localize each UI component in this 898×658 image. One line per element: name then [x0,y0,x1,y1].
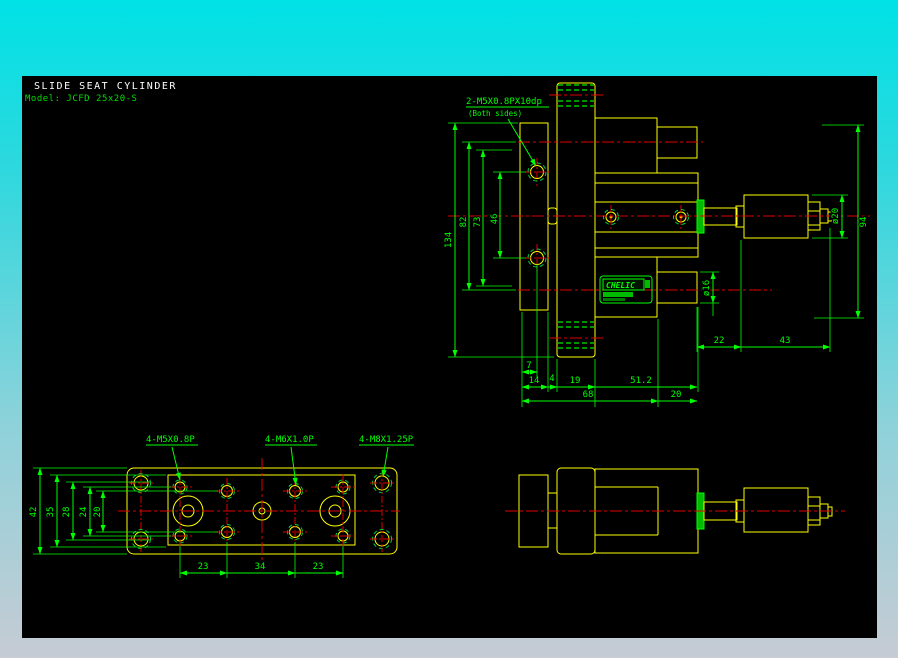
dim-7: 7 [526,361,531,371]
cad-window: SLIDE SEAT CYLINDER Model: JCFD 25x20-S [0,0,898,658]
drawing-title: SLIDE SEAT CYLINDER [34,81,177,92]
dim-94: 94 [859,217,869,228]
dim-20: 20 [671,390,682,400]
dim-23b: 23 [313,562,324,572]
dim-46: 46 [490,214,500,225]
dim-35: 35 [46,507,56,518]
dim-28: 28 [62,507,72,518]
label-m5: 4-M5X0.8P [146,435,195,445]
dim-82: 82 [459,217,469,228]
dim-34: 34 [255,562,266,572]
dim-dia16: ø16 [702,280,712,296]
dim-68: 68 [583,390,594,400]
dim-4: 4 [549,374,554,384]
label-m8: 4-M8X1.25P [359,435,414,445]
dim-42: 42 [29,507,39,518]
dim-20-plan: 20 [93,507,103,518]
brand-logo: CHELIC [606,281,635,290]
dim-73: 73 [473,217,483,228]
dim-51-2: 51.2 [630,376,652,386]
dim-134: 134 [444,232,454,248]
dim-43: 43 [780,336,791,346]
label-m6: 4-M6X1.0P [265,435,314,445]
dim-23a: 23 [198,562,209,572]
dim-dia20: ø20 [831,208,841,224]
thread-note-text: 2-M5X0.8PX10dp [466,97,542,107]
drawing-model: Model: JCFD 25x20-S [25,94,137,104]
dim-22: 22 [714,336,725,346]
dim-14: 14 [529,376,540,386]
thread-note-sub: (Both sides) [468,109,522,118]
cad-drawing: SLIDE SEAT CYLINDER Model: JCFD 25x20-S [0,0,898,658]
dim-19: 19 [570,376,581,386]
dim-24: 24 [79,507,89,518]
